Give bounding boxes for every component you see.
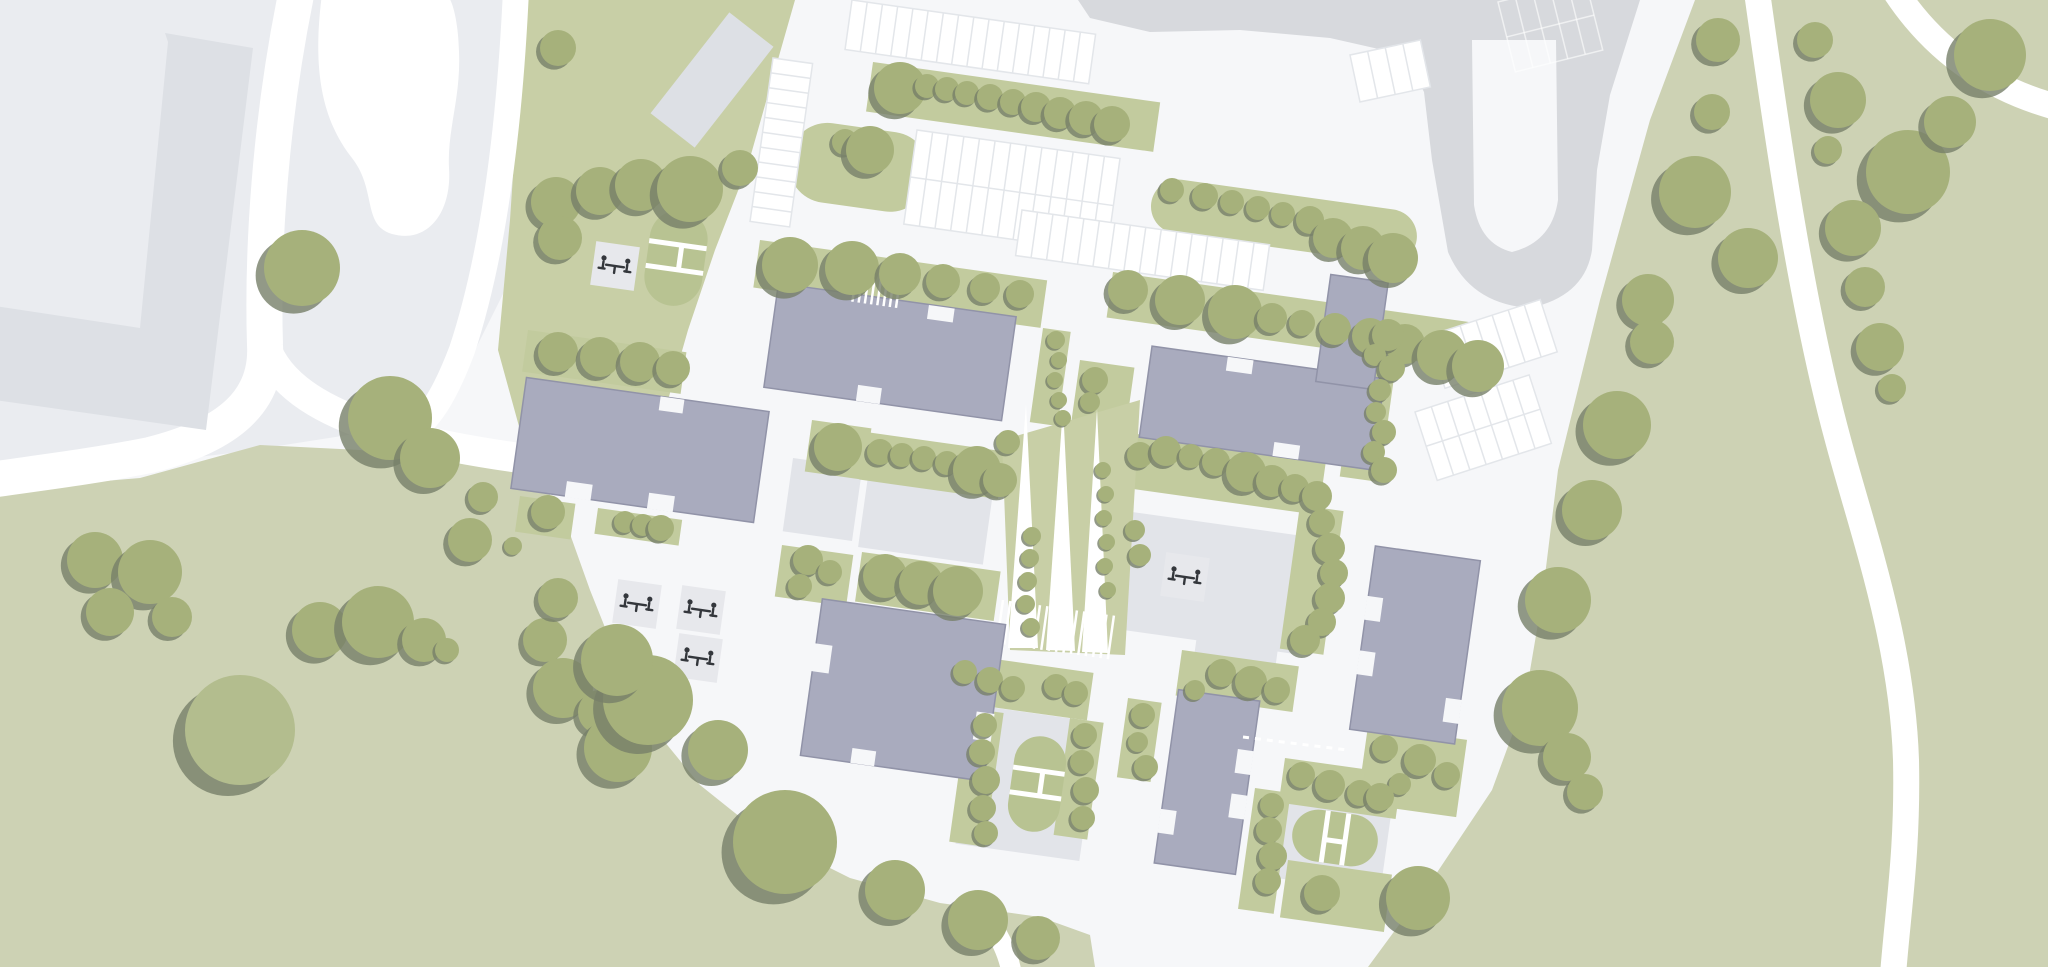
picnic-area-4	[1160, 552, 1210, 602]
picnic-area-2	[676, 585, 726, 635]
site-plan-map	[0, 0, 2048, 967]
picnic-area-1	[612, 579, 662, 629]
site-plan-svg	[0, 0, 2048, 967]
picnic-area-0	[590, 241, 640, 291]
